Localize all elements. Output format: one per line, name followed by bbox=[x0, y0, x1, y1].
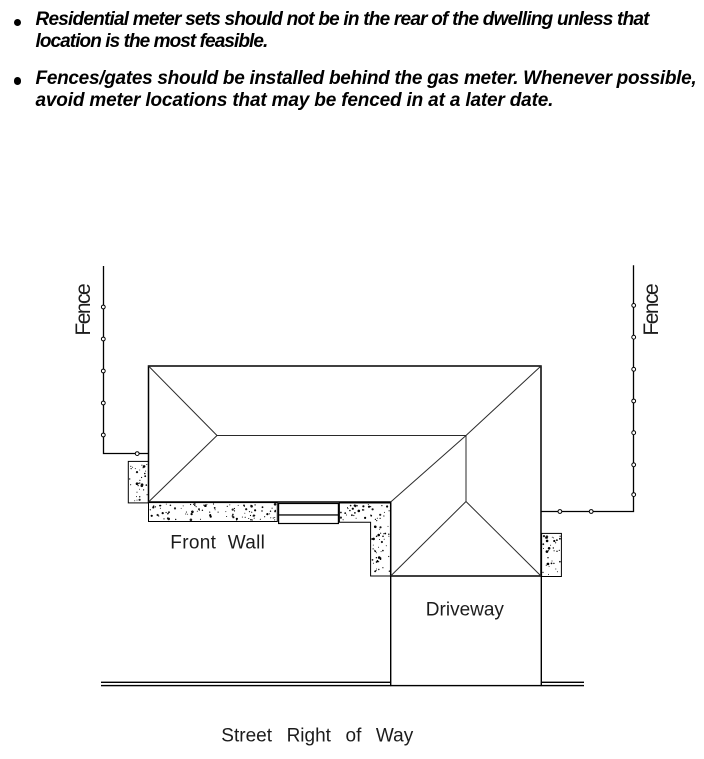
svg-text:Front Wall: Front Wall bbox=[170, 533, 265, 554]
svg-text:Fence: Fence bbox=[640, 284, 663, 336]
svg-text:Fence: Fence bbox=[72, 284, 95, 336]
svg-text:Driveway: Driveway bbox=[426, 600, 505, 621]
svg-text:Street Right of Way: Street Right of Way bbox=[221, 726, 413, 747]
